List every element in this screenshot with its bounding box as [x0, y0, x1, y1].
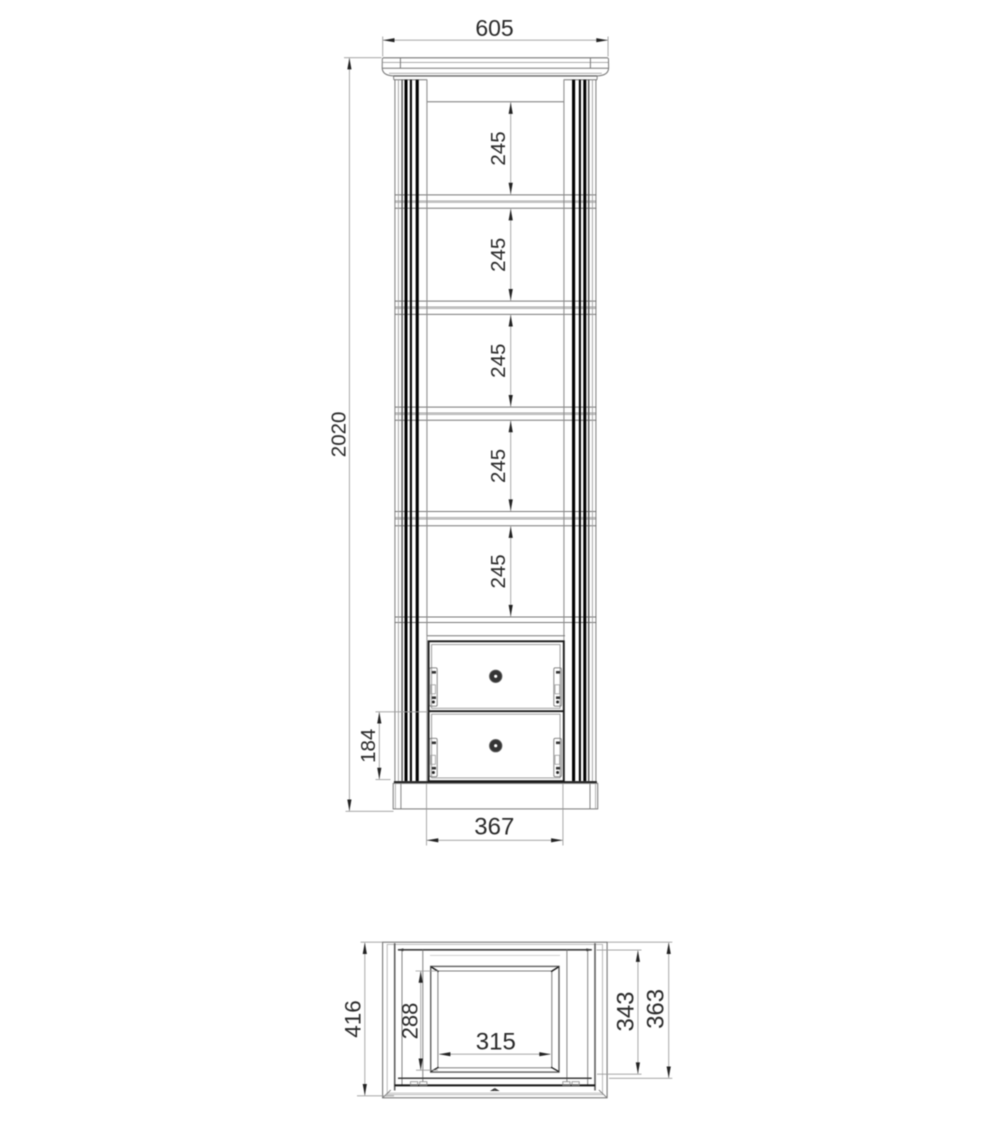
svg-text:184: 184: [357, 729, 380, 763]
svg-text:605: 605: [475, 15, 513, 41]
svg-text:245: 245: [487, 131, 510, 165]
svg-text:367: 367: [474, 814, 514, 841]
svg-text:288: 288: [397, 1003, 422, 1040]
svg-text:245: 245: [487, 449, 510, 483]
svg-text:363: 363: [642, 989, 669, 1029]
svg-text:343: 343: [612, 991, 639, 1031]
svg-text:315: 315: [476, 1029, 516, 1056]
svg-text:245: 245: [487, 344, 510, 378]
svg-text:245: 245: [487, 554, 510, 588]
svg-text:2020: 2020: [328, 412, 351, 458]
svg-text:416: 416: [341, 1000, 366, 1038]
svg-text:245: 245: [487, 238, 510, 272]
